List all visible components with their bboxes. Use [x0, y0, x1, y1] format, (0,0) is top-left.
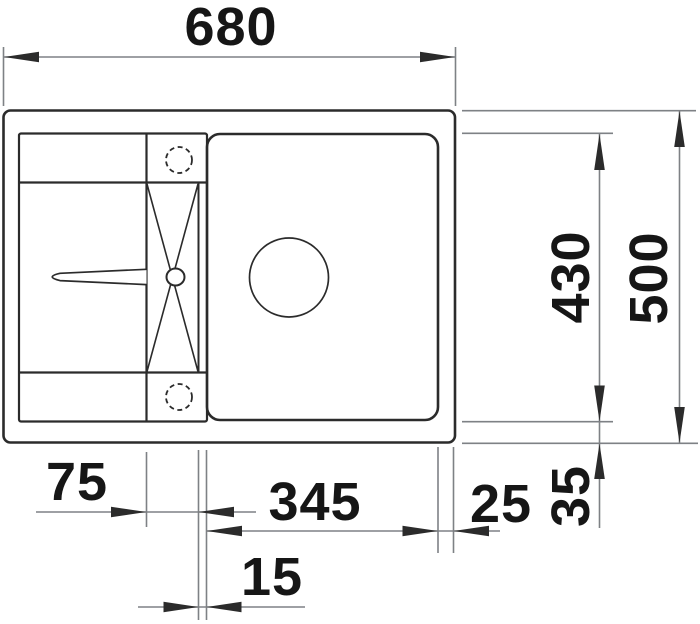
drain-hole — [250, 238, 329, 317]
dim-label-ledge-to-bowl-gap: 15 — [241, 547, 303, 607]
dim-label-rim-depth: 35 — [541, 465, 601, 527]
arrow-15-left — [164, 602, 199, 612]
optional-tap-hole-top — [166, 147, 192, 173]
dim-label-cutout-depth: 430 — [541, 230, 601, 323]
drawing-canvas: 680 430 500 75 345 25 35 15 — [0, 0, 700, 624]
arrow-345-right — [403, 526, 439, 536]
arrow-75-right — [199, 507, 235, 517]
optional-tap-hole-bottom — [166, 384, 192, 410]
dim-label-bowl-width: 345 — [268, 472, 361, 532]
arrow-680-right — [420, 52, 455, 62]
arrow-75-left — [111, 507, 147, 517]
dim-label-overall-depth: 500 — [619, 231, 679, 324]
arrow-345-left — [207, 526, 243, 536]
arrow-430-bottom — [594, 386, 605, 422]
faucet-lever-shape — [52, 269, 146, 284]
dim-label-bowl-to-edge-gap: 25 — [470, 474, 532, 534]
arrow-500-top — [674, 111, 685, 147]
sink-technical-drawing: 680 430 500 75 345 25 35 15 — [0, 0, 700, 624]
arrow-500-bottom — [674, 407, 685, 443]
dim-label-overall-width: 680 — [184, 0, 277, 57]
arrow-15-right — [207, 602, 242, 612]
arrow-680-left — [4, 52, 39, 62]
main-bowl-outline — [207, 134, 438, 420]
sink-body — [4, 111, 456, 443]
arrow-430-top — [594, 134, 605, 170]
tap-axis-knob — [167, 269, 185, 286]
dim-label-tap-ledge-width: 75 — [46, 452, 108, 512]
dimension-labels: 680 430 500 75 345 25 35 15 — [46, 0, 679, 607]
